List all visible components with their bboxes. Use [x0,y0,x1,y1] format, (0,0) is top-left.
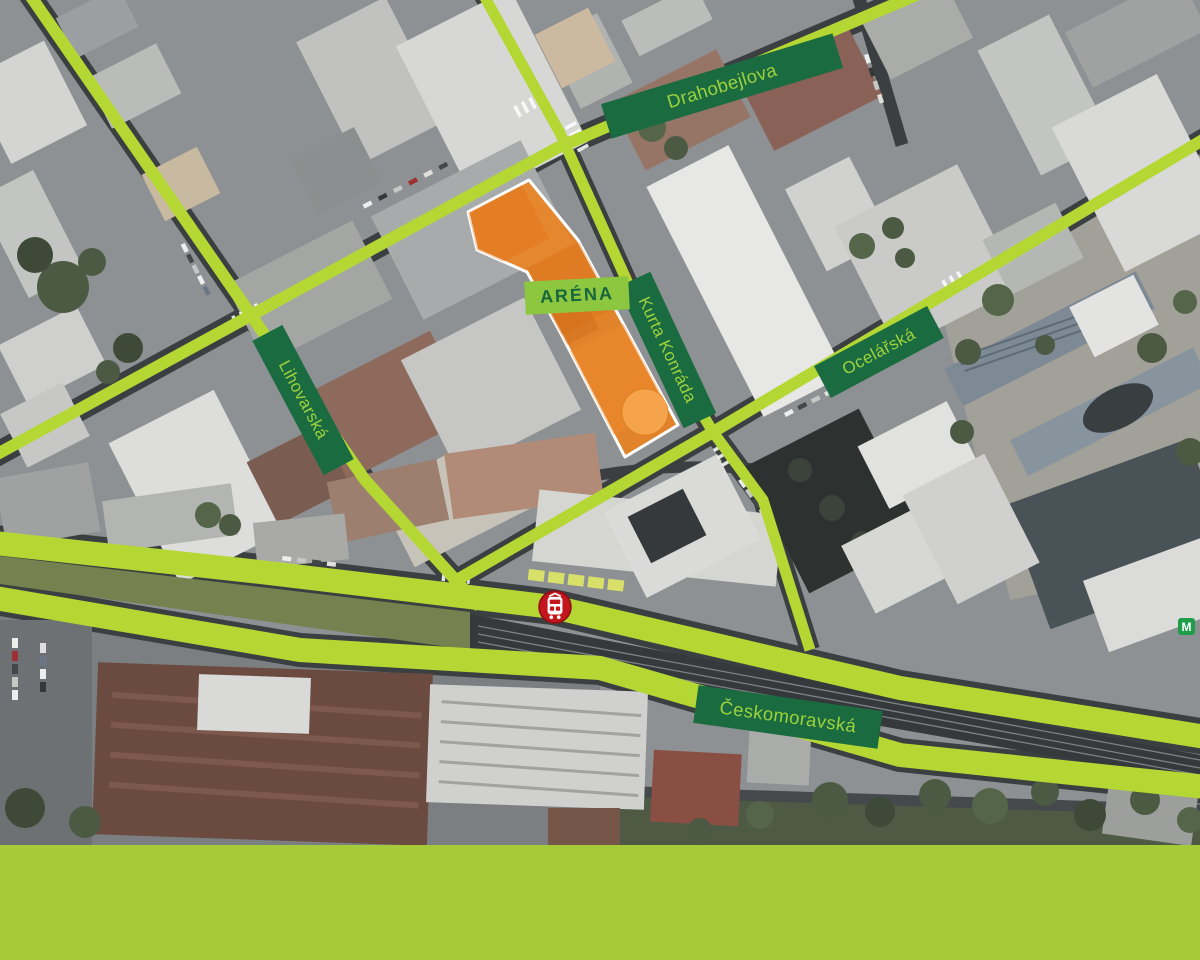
tram-stop-marker [539,591,571,623]
footer-bar: ARÉNA Praha 9 LEGENDA Dokončeno Ve výsta… [0,845,1200,960]
svg-text:M: M [1182,620,1192,634]
metro-icon: M [1178,618,1195,635]
map-area: M Drahobejlova Lihovarská Kurta Konráda … [0,0,1200,845]
vivus-arena-location-map: M Drahobejlova Lihovarská Kurta Konráda … [0,0,1200,960]
area-label-arena: ARÉNA [524,276,630,314]
aerial-map: M [0,0,1200,845]
